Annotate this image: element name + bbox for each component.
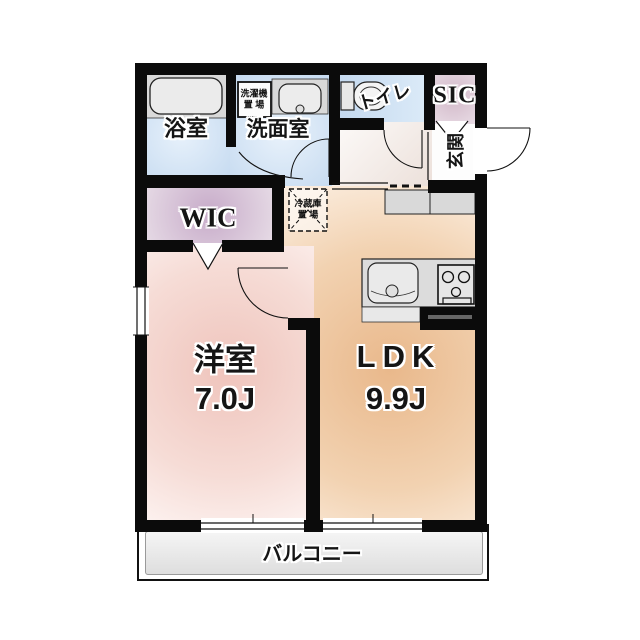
washer-space-line1: 洗濯機 [240,89,267,99]
western-room-area: 7.0J [195,381,255,417]
hall-ldk-opening [332,183,426,189]
bath-label: 浴室 [164,111,208,143]
wall [226,63,236,147]
fridge-space-label: 冷蔵庫 置 場 [294,199,321,220]
wall [222,240,284,252]
wall [135,175,285,188]
stove [438,265,474,304]
wall [340,118,384,130]
storage-counter [385,190,475,214]
washroom-sink [272,79,328,114]
entrance-door [473,128,530,174]
washroom-label: 洗面室 [247,113,310,143]
window-balcony-right [323,514,422,533]
western-room-door [238,268,288,318]
wall [422,520,487,532]
washer-space-label: 洗濯機 置 場 [240,89,267,110]
balcony-label: バルコニー [262,538,362,567]
wall [475,174,487,532]
wic-folding-door [193,243,223,269]
wall [428,180,475,193]
wall [135,240,193,252]
ldk-area: 9.9J [366,381,426,417]
western-room-label: 洋室 [194,335,256,380]
bath-door [239,152,303,179]
wall [329,63,340,185]
entrance-label: 玄関 [442,133,468,169]
fridge-space-line1: 冷蔵庫 [294,199,321,209]
fridge-space-line2: 置 場 [298,209,319,219]
wall [475,63,487,128]
wall [135,520,201,532]
washer-space-line2: 置 場 [244,99,265,109]
wall [288,318,308,330]
wic-label: WIC [179,203,236,234]
wall [135,335,147,532]
wall [306,318,320,525]
toilet-door [384,130,422,168]
washroom-door [291,139,329,177]
window-balcony-left [201,514,304,533]
sic-label: SIC [433,83,476,110]
floor-plan: 浴室 洗面室 トイレ SIC 玄関 WIC 洋室 7.0J LDK 9.9J バ… [0,0,640,640]
window-left [133,287,149,335]
ldk-label: LDK [357,339,442,375]
